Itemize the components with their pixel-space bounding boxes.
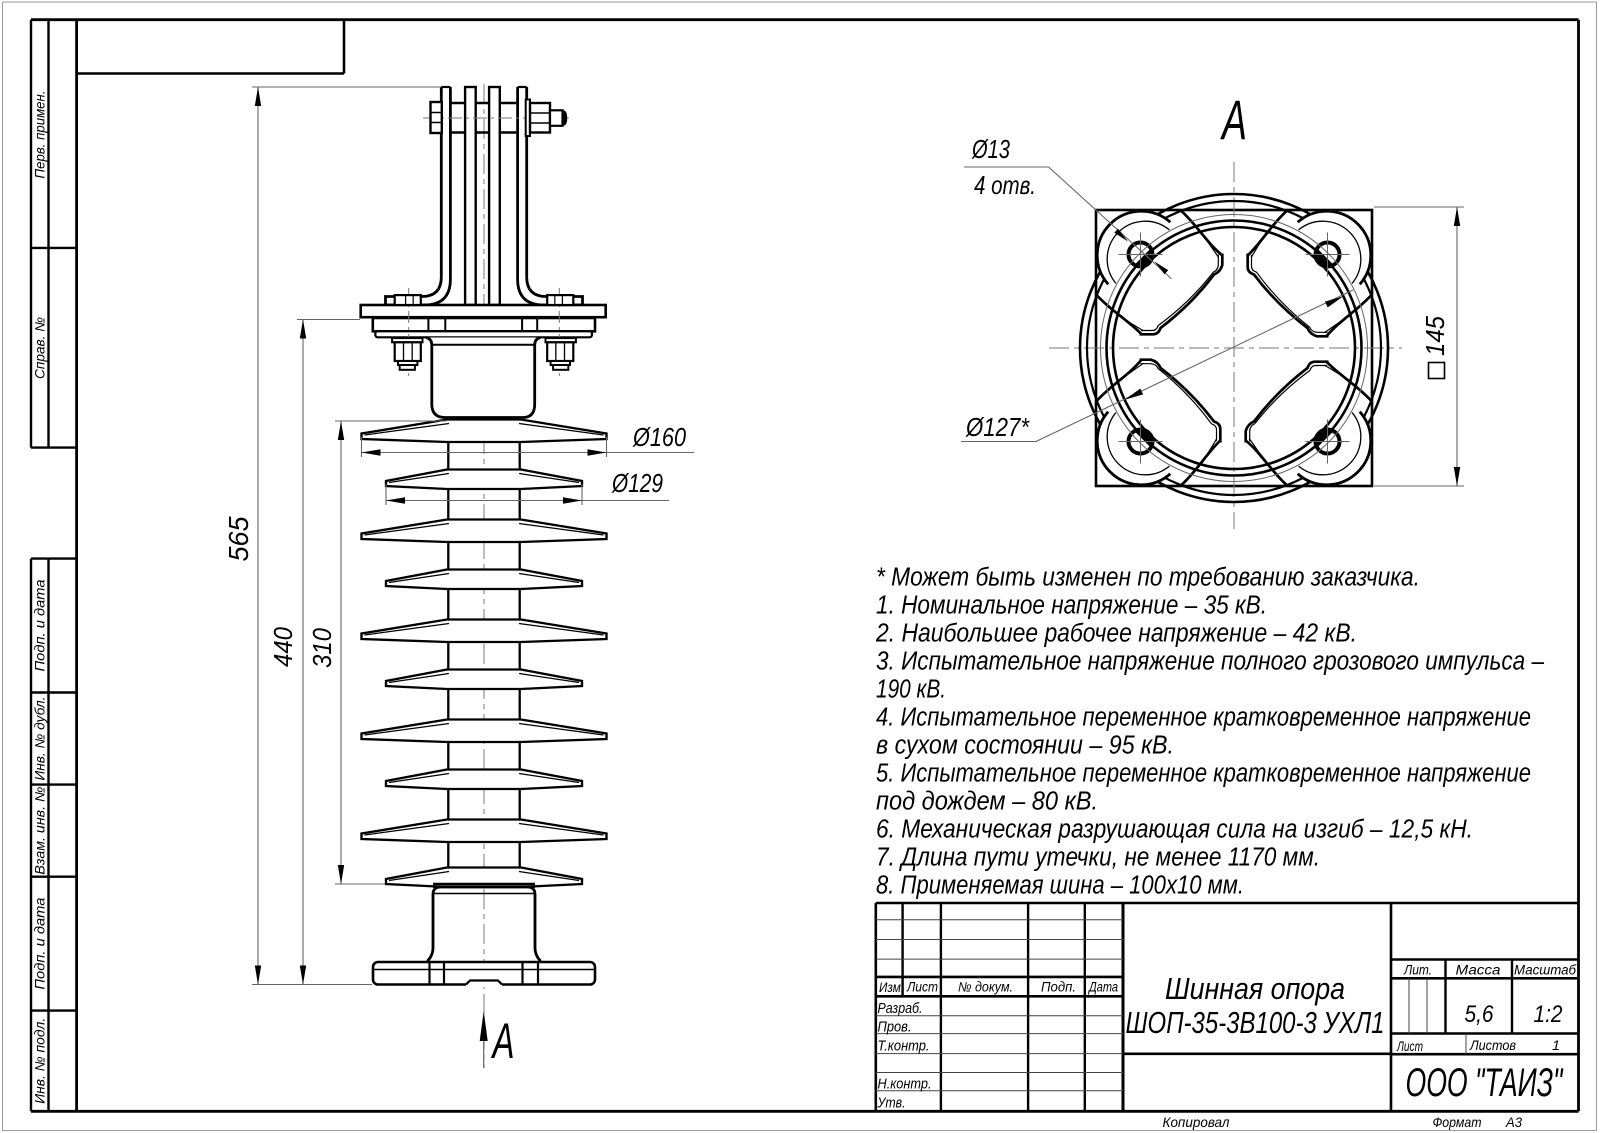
svg-text:Разраб.: Разраб. <box>878 1001 923 1017</box>
svg-text:1:2: 1:2 <box>1534 1001 1563 1028</box>
svg-text:Подп. и дата: Подп. и дата <box>33 579 48 672</box>
svg-text:8. Применяемая шина – 100х10 м: 8. Применяемая шина – 100х10 мм. <box>876 872 1244 900</box>
svg-text:Дата: Дата <box>1087 980 1118 995</box>
svg-text:3. Испытательное напряжение по: 3. Испытательное напряжение полного гроз… <box>876 648 1545 676</box>
svg-text:145: 145 <box>1420 316 1450 356</box>
svg-text:ШОП-35-3В100-3 УХЛ1: ШОП-35-3В100-3 УХЛ1 <box>1126 1005 1385 1040</box>
svg-text:4 отв.: 4 отв. <box>974 170 1036 200</box>
svg-text:Утв.: Утв. <box>877 1096 906 1112</box>
svg-text:Листов: Листов <box>1469 1038 1516 1053</box>
svg-text:Лист: Лист <box>1396 1039 1423 1054</box>
svg-text:6. Механическая разрушающая си: 6. Механическая разрушающая сила на изги… <box>876 816 1473 844</box>
svg-text:Подп.: Подп. <box>1041 980 1076 995</box>
svg-text:№ докум.: № докум. <box>958 980 1013 995</box>
svg-text:2. Наибольшее рабочее напряжен: 2. Наибольшее рабочее напряжение – 42 кВ… <box>875 620 1357 648</box>
svg-text:Масса: Масса <box>1456 963 1502 978</box>
svg-text:Лит.: Лит. <box>1403 963 1432 978</box>
svg-text:Подп. и дата: Подп. и дата <box>33 897 48 990</box>
svg-text:А: А <box>1220 88 1247 151</box>
svg-text:Изм.: Изм. <box>879 980 904 995</box>
svg-text:Справ. №: Справ. № <box>33 317 48 379</box>
svg-text:Ø13: Ø13 <box>971 134 1010 164</box>
svg-text:4. Испытательное переменное кр: 4. Испытательное переменное кратковремен… <box>876 704 1531 732</box>
svg-text:5,6: 5,6 <box>1465 1001 1495 1028</box>
svg-text:Ø127*: Ø127* <box>965 412 1030 442</box>
svg-text:Ø160: Ø160 <box>632 422 686 452</box>
svg-text:под дождем – 80 кВ.: под дождем – 80 кВ. <box>876 788 1098 816</box>
svg-text:Копировал: Копировал <box>1163 1114 1230 1130</box>
svg-text:1: 1 <box>1552 1038 1560 1053</box>
svg-text:Формат: Формат <box>1433 1114 1482 1130</box>
svg-text:Перв. примен.: Перв. примен. <box>33 91 48 179</box>
svg-text:Инв. № дубл.: Инв. № дубл. <box>33 697 48 781</box>
svg-text:Ø129: Ø129 <box>611 468 663 498</box>
svg-text:7. Длина пути утечки, не менее: 7. Длина пути утечки, не менее 1170 мм. <box>876 844 1320 872</box>
svg-text:* Может быть изменен по требов: * Может быть изменен по требованию заказ… <box>876 564 1420 592</box>
svg-text:Н.контр.: Н.контр. <box>878 1077 932 1093</box>
svg-text:Взам. инв. №: Взам. инв. № <box>33 786 48 874</box>
svg-text:310: 310 <box>307 628 337 668</box>
svg-text:Инв. № подл.: Инв. № подл. <box>33 1018 48 1104</box>
svg-text:Шинная опора: Шинная опора <box>1165 971 1345 1006</box>
svg-text:440: 440 <box>268 627 298 667</box>
svg-text:1. Номинальное напряжение – 35: 1. Номинальное напряжение – 35 кВ. <box>876 592 1267 620</box>
svg-text:Масштаб: Масштаб <box>1514 963 1576 978</box>
svg-text:565: 565 <box>223 516 254 561</box>
svg-text:Т.контр.: Т.контр. <box>878 1039 930 1055</box>
svg-text:в сухом состоянии – 95 кВ.: в сухом состоянии – 95 кВ. <box>876 732 1174 760</box>
svg-text:А3: А3 <box>1505 1114 1522 1130</box>
svg-text:Лист: Лист <box>906 980 938 995</box>
svg-text:Пров.: Пров. <box>878 1020 912 1036</box>
svg-text:5. Испытательное переменное кр: 5. Испытательное переменное кратковремен… <box>876 760 1531 788</box>
svg-text:ООО "ТАИЗ": ООО "ТАИЗ" <box>1406 1061 1564 1105</box>
svg-text:А: А <box>491 1013 515 1069</box>
svg-text:190 кВ.: 190 кВ. <box>876 676 946 704</box>
